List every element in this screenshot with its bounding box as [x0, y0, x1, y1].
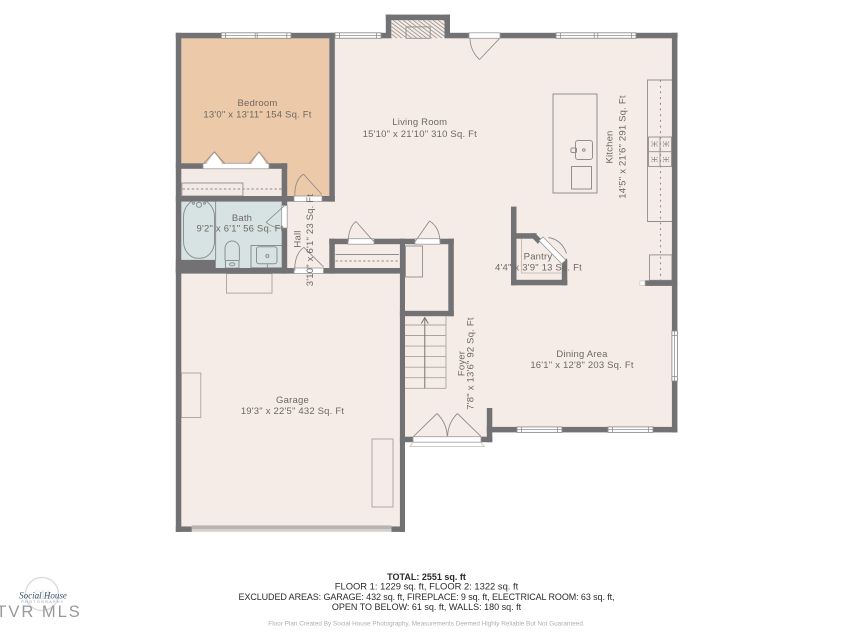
svg-text:9'2" x 6'1" 56 Sq. Ft: 9'2" x 6'1" 56 Sq. Ft	[197, 224, 284, 235]
svg-text:FLOOR 1: 1229 sq. ft, FLOOR 2:: FLOOR 1: 1229 sq. ft, FLOOR 2: 1322 sq. …	[335, 581, 519, 592]
svg-text:TVR MLS: TVR MLS	[0, 603, 82, 621]
svg-text:Living Room: Living Room	[392, 117, 447, 128]
svg-text:Kitchen: Kitchen	[605, 130, 616, 163]
svg-text:Floor Plan Created By Social H: Floor Plan Created By Social House Photo…	[268, 621, 585, 628]
svg-text:Bedroom: Bedroom	[238, 98, 278, 109]
svg-text:19'3" x 22'5" 432 Sq. Ft: 19'3" x 22'5" 432 Sq. Ft	[241, 406, 345, 417]
svg-text:Pantry: Pantry	[524, 252, 553, 263]
svg-text:Bath: Bath	[232, 213, 252, 224]
svg-text:Dining Area: Dining Area	[556, 349, 608, 360]
svg-text:EXCLUDED AREAS: GARAGE: 432 sq: EXCLUDED AREAS: GARAGE: 432 sq. ft, FIRE…	[239, 592, 615, 602]
svg-text:Garage: Garage	[276, 395, 309, 406]
svg-text:OPEN TO BELOW: 61 sq. ft, WALL: OPEN TO BELOW: 61 sq. ft, WALLS: 180 sq.…	[332, 602, 522, 612]
svg-text:3'10" x 6'1" 23 Sq. Ft: 3'10" x 6'1" 23 Sq. Ft	[305, 194, 316, 287]
svg-text:Hall: Hall	[293, 230, 304, 247]
svg-text:7'8" x 13'6" 92 Sq. Ft: 7'8" x 13'6" 92 Sq. Ft	[466, 317, 477, 410]
svg-text:13'0" x 13'11" 154 Sq. Ft: 13'0" x 13'11" 154 Sq. Ft	[203, 110, 311, 121]
svg-text:16'1" x 12'8" 203 Sq. Ft: 16'1" x 12'8" 203 Sq. Ft	[530, 360, 634, 371]
svg-text:15'10" x 21'10" 310 Sq. Ft: 15'10" x 21'10" 310 Sq. Ft	[363, 129, 477, 140]
svg-text:14'5" x 21'6" 291 Sq. Ft: 14'5" x 21'6" 291 Sq. Ft	[618, 95, 629, 199]
svg-text:4'4" x 3'9" 13 Sq. Ft: 4'4" x 3'9" 13 Sq. Ft	[495, 262, 582, 273]
